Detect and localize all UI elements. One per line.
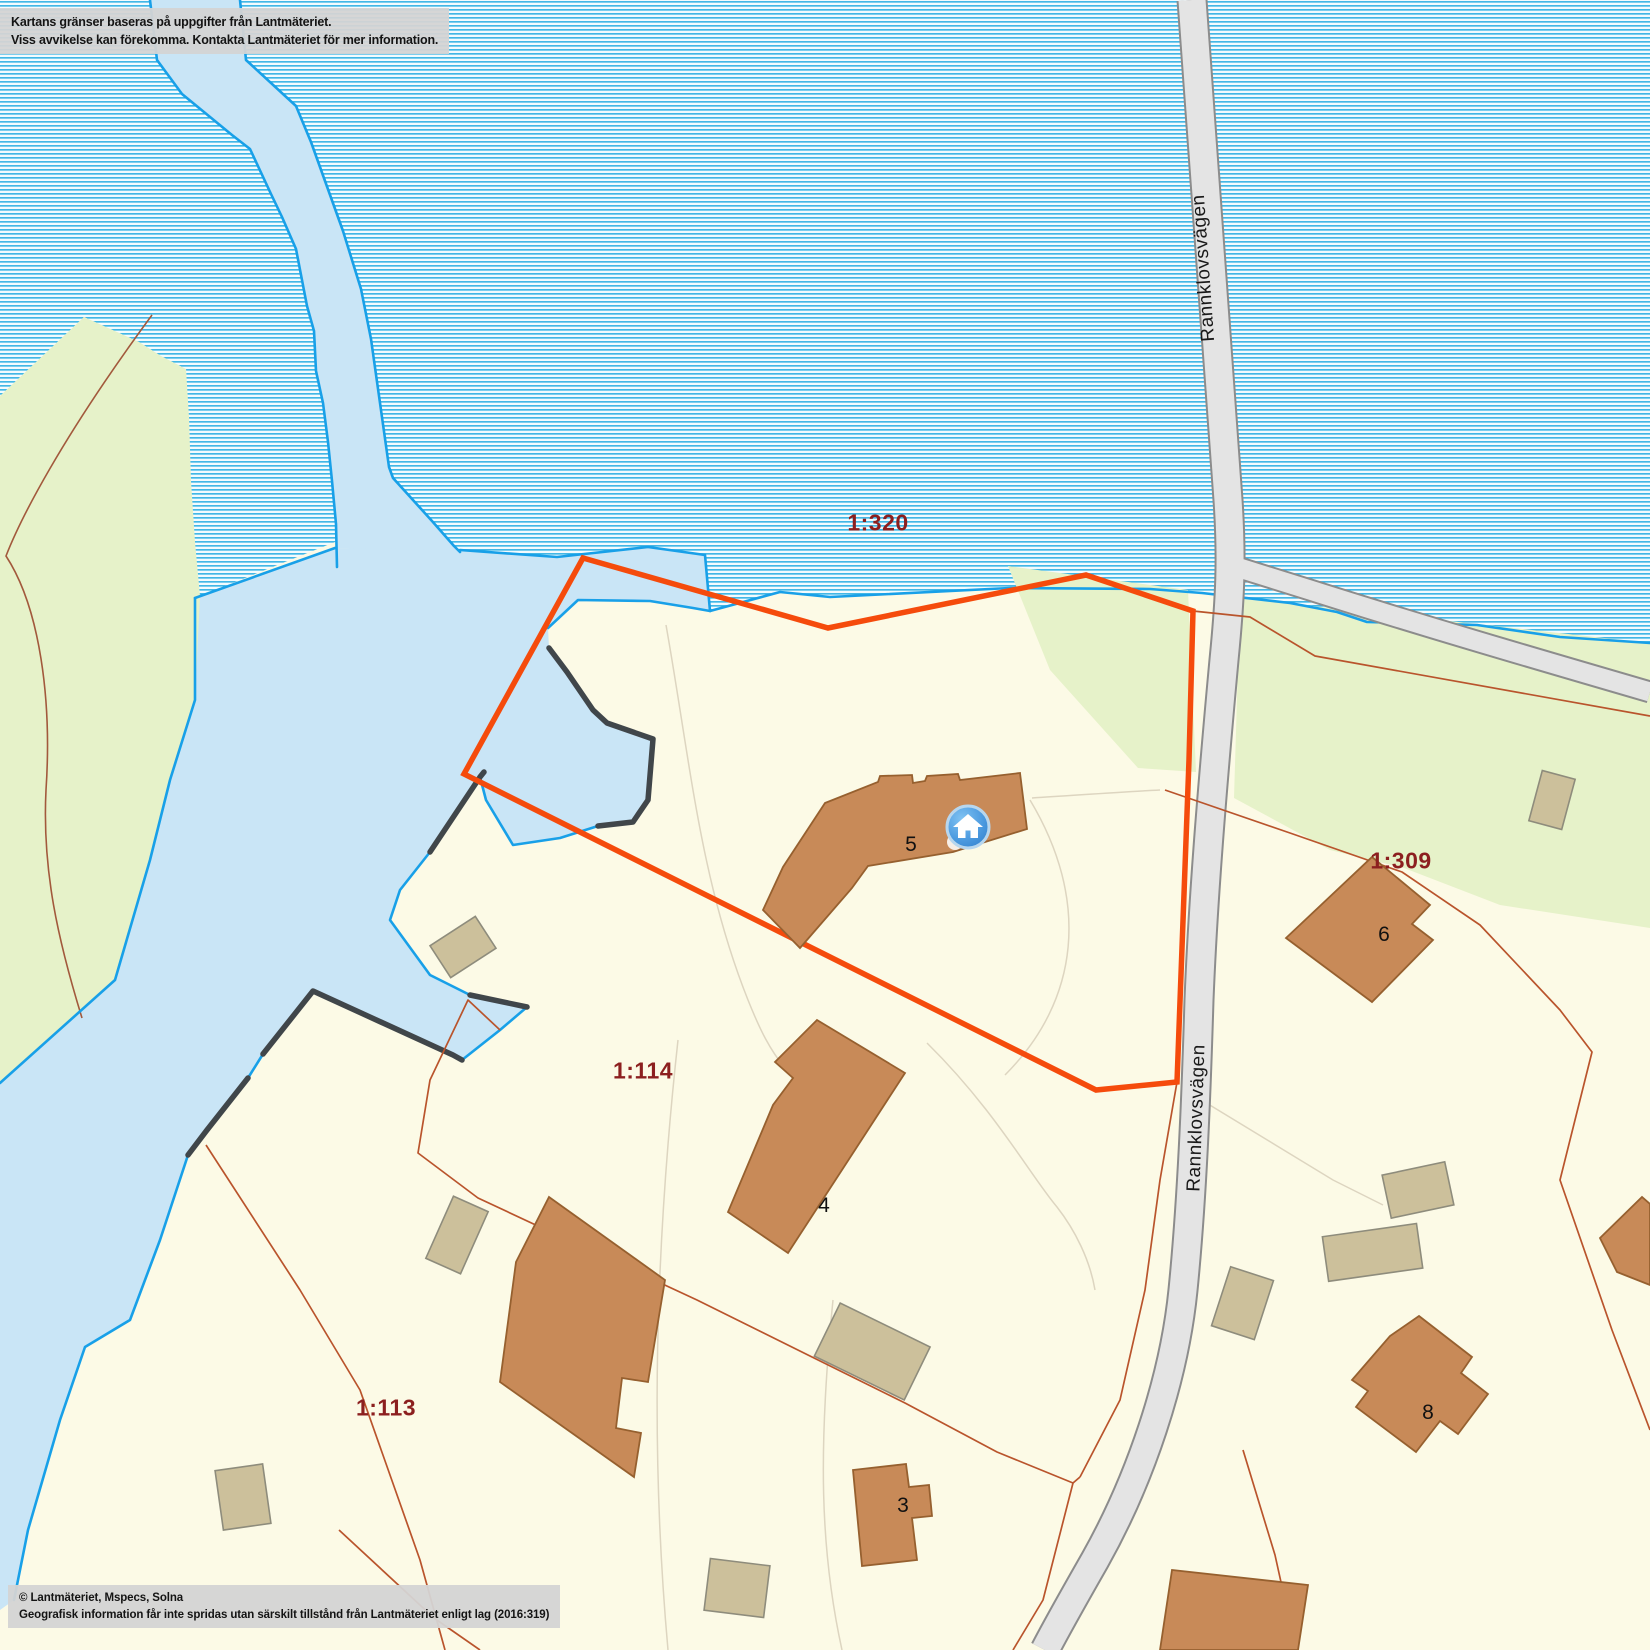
- map-graphics: [0, 0, 1650, 1650]
- disclaimer-line-2: Viss avvikelse kan förekomma. Kontakta L…: [11, 31, 438, 49]
- map-attribution: © Lantmäteriet, Mspecs, Solna Geografisk…: [8, 1585, 560, 1628]
- map-disclaimer: Kartans gränser baseras på uppgifter frå…: [0, 8, 449, 54]
- cadastral-map[interactable]: 1:320 1:309 1:114 1:113 5 4 6 3 8 Rannkl…: [0, 0, 1650, 1650]
- building-bottom: [1160, 1570, 1308, 1650]
- disclaimer-line-1: Kartans gränser baseras på uppgifter frå…: [11, 13, 438, 31]
- home-marker[interactable]: [943, 802, 993, 852]
- home-marker-icon: [943, 802, 993, 852]
- attribution-line-1: © Lantmäteriet, Mspecs, Solna: [19, 1590, 549, 1607]
- attribution-line-2: Geografisk information får inte spridas …: [19, 1607, 549, 1624]
